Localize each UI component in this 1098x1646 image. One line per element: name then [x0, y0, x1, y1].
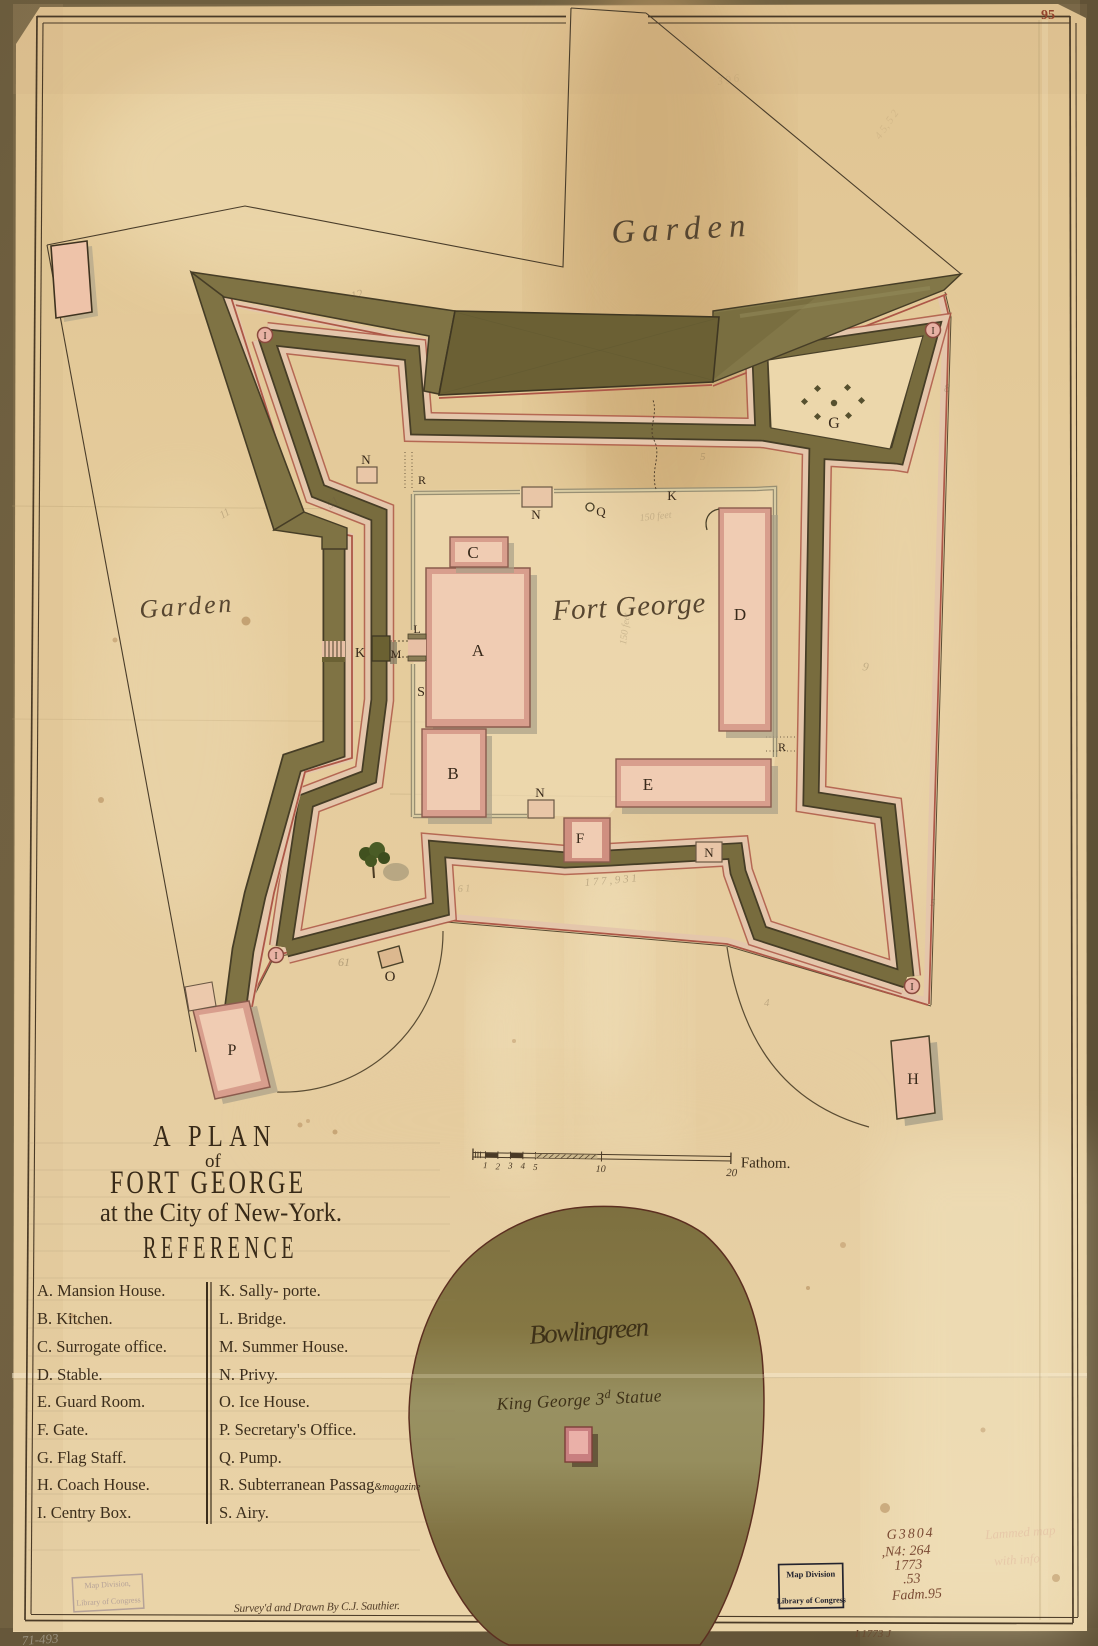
svg-text:C. Surrogate office.: C. Surrogate office. [37, 1337, 167, 1356]
svg-text:3: 3 [507, 1161, 513, 1171]
svg-text:2: 2 [495, 1161, 500, 1171]
svg-text:Q. Pump.: Q. Pump. [219, 1448, 282, 1467]
svg-text:1: 1 [483, 1160, 488, 1170]
svg-text:D: D [734, 605, 746, 624]
svg-text:Fadm.95: Fadm.95 [890, 1586, 942, 1604]
svg-text:O: O [385, 969, 396, 985]
svg-text:Map Division: Map Division [786, 1569, 835, 1580]
svg-text:M: M [391, 647, 402, 661]
svg-text:L. Bridge.: L. Bridge. [219, 1309, 286, 1328]
svg-text:I: I [910, 982, 913, 993]
svg-text:N: N [535, 785, 545, 800]
svg-text:B: B [447, 764, 458, 783]
svg-text:A: A [472, 641, 485, 660]
svg-text:N: N [704, 845, 714, 860]
svg-text:P. Secretary's Office.: P. Secretary's Office. [219, 1420, 356, 1439]
svg-text:Library of Congress: Library of Congress [777, 1595, 846, 1605]
svg-text:I: I [274, 951, 277, 962]
svg-text:Fathom.: Fathom. [741, 1155, 791, 1172]
svg-text:5: 5 [700, 451, 706, 463]
svg-text:G: G [828, 415, 840, 432]
svg-text:N: N [531, 507, 541, 522]
svg-text:S: S [417, 685, 425, 700]
svg-text:6 1: 6 1 [457, 883, 470, 895]
svg-text:N: N [361, 452, 371, 467]
svg-text:5: 5 [930, 897, 936, 909]
svg-text:D. Stable.: D. Stable. [37, 1365, 103, 1384]
svg-text:E: E [643, 775, 653, 794]
svg-text:C: C [467, 543, 478, 562]
svg-text:I: I [263, 331, 266, 342]
svg-text:95: 95 [1041, 8, 1055, 23]
svg-text:M. Summer House.: M. Summer House. [219, 1337, 348, 1356]
svg-text:K: K [667, 488, 677, 503]
svg-text:K: K [355, 646, 365, 661]
svg-text:Q: Q [596, 504, 606, 519]
svg-text:REFERENCE: REFERENCE [143, 1229, 298, 1265]
svg-text:8: 8 [944, 381, 950, 395]
svg-text:4: 4 [520, 1161, 525, 1171]
svg-text:F: F [576, 831, 584, 847]
svg-text:P: P [228, 1042, 237, 1059]
svg-text:I 1773 J: I 1773 J [854, 1628, 892, 1640]
svg-text:K. Sally- porte.: K. Sally- porte. [219, 1281, 321, 1300]
svg-text:S. Airy.: S. Airy. [219, 1503, 269, 1522]
svg-text:F. Gate.: F. Gate. [37, 1420, 88, 1439]
svg-text:4: 4 [764, 997, 770, 1009]
svg-text:A PLAN: A PLAN [153, 1118, 277, 1153]
svg-text:H: H [907, 1071, 919, 1088]
svg-text:B. Kitchen.: B. Kitchen. [37, 1309, 113, 1328]
svg-text:I: I [931, 326, 934, 337]
svg-text:71-493: 71-493 [21, 1630, 59, 1646]
svg-text:L: L [413, 622, 420, 636]
svg-text:20: 20 [726, 1167, 738, 1179]
svg-text:R: R [778, 740, 786, 754]
svg-text:E. Guard Room.: E. Guard Room. [37, 1392, 145, 1411]
svg-text:FORT GEORGE: FORT GEORGE [110, 1165, 306, 1201]
svg-text:.53: .53 [903, 1571, 921, 1587]
svg-text:G. Flag Staff.: G. Flag Staff. [37, 1448, 127, 1467]
svg-text:N. Privy.: N. Privy. [219, 1365, 278, 1384]
svg-text:O. Ice House.: O. Ice House. [219, 1392, 310, 1411]
svg-text:10: 10 [596, 1164, 606, 1175]
svg-text:61: 61 [338, 955, 350, 969]
svg-text:at the City of New-York.: at the City of New-York. [100, 1198, 342, 1227]
svg-text:G3804: G3804 [886, 1526, 935, 1543]
svg-text:R: R [418, 473, 426, 487]
svg-text:I. Centry Box.: I. Centry Box. [37, 1503, 131, 1522]
svg-text:H. Coach House.: H. Coach House. [37, 1475, 150, 1494]
svg-text:A. Mansion House.: A. Mansion House. [37, 1281, 165, 1300]
svg-text:5: 5 [533, 1162, 538, 1172]
